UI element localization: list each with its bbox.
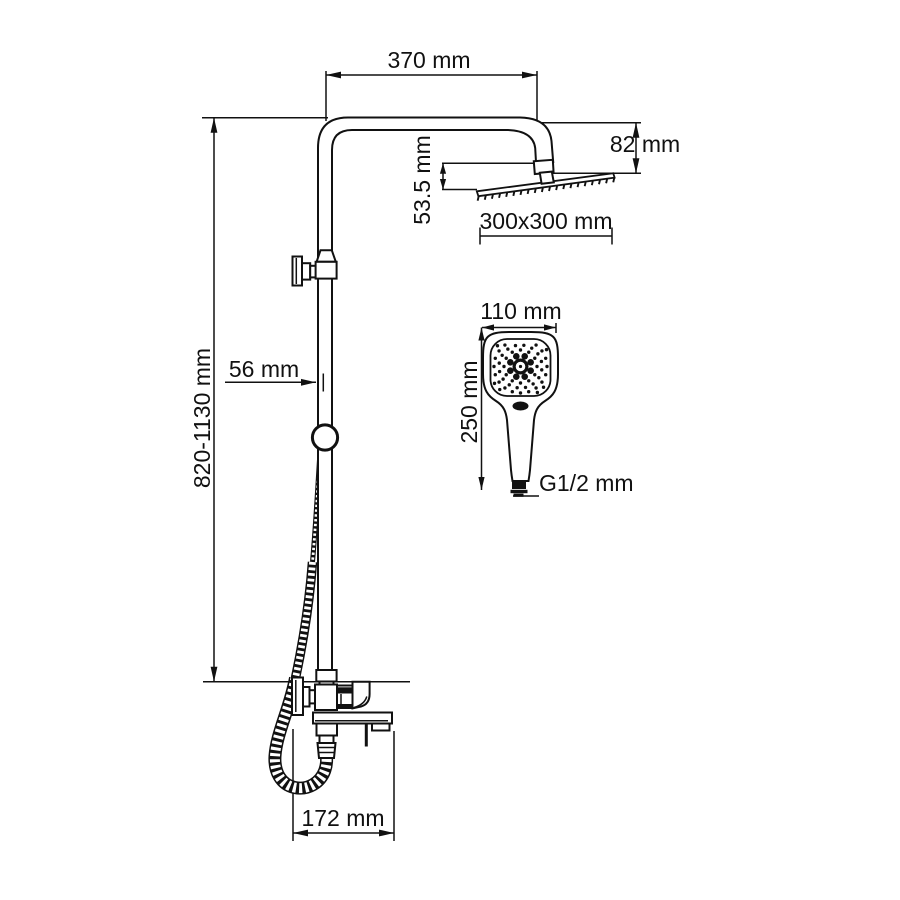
mixer-handle-stem [365, 725, 368, 747]
dim-head-size: 300x300 mm [480, 208, 613, 245]
slider-knob [312, 425, 337, 450]
mode-button [513, 402, 529, 411]
dim-handshower-length: 250 mm [456, 328, 485, 491]
head-connector-nut [540, 172, 554, 184]
label-head-height: 82 mm [610, 131, 680, 157]
dim-column-height: 820-1130 mm [189, 118, 410, 682]
label-spout-reach: 172 mm [301, 805, 384, 831]
label-handshower-length: 250 mm [456, 360, 482, 443]
mixer-wall-plate [292, 678, 303, 716]
hose-connector [512, 481, 526, 489]
technical-drawing: 820-1130 mm 370 mm 82 mm 53.5 mm 300x300… [0, 0, 900, 900]
label-arm-length: 370 mm [387, 47, 470, 73]
dim-wall-offset: 56 mm [225, 356, 323, 392]
label-connection-thread: G1/2 mm [539, 470, 634, 496]
label-handshower-width: 110 mm [480, 298, 561, 324]
label-head-size: 300x300 mm [480, 208, 613, 234]
bracket-collar-top [317, 250, 336, 261]
drawing-canvas: 820-1130 mm 370 mm 82 mm 53.5 mm 300x300… [0, 0, 900, 900]
label-head-offset: 53.5 mm [409, 135, 435, 224]
mixer-body [315, 685, 337, 711]
diverter-block [317, 724, 338, 736]
mixer-spout [313, 713, 392, 724]
riser-bottom-collar [316, 670, 336, 682]
bath-mixer [292, 670, 392, 758]
hose-nut [318, 743, 336, 758]
label-wall-offset: 56 mm [229, 356, 299, 382]
spout-nozzle [372, 724, 390, 731]
bracket-collar [316, 262, 337, 279]
label-column-height: 820-1130 mm [189, 348, 215, 488]
bracket-wall-plate [293, 257, 303, 286]
dim-connection-thread: G1/2 mm [513, 470, 634, 496]
bracket-arm [302, 263, 310, 279]
dim-handshower-width: 110 mm [480, 298, 561, 333]
overhead-shower-head [477, 160, 615, 201]
